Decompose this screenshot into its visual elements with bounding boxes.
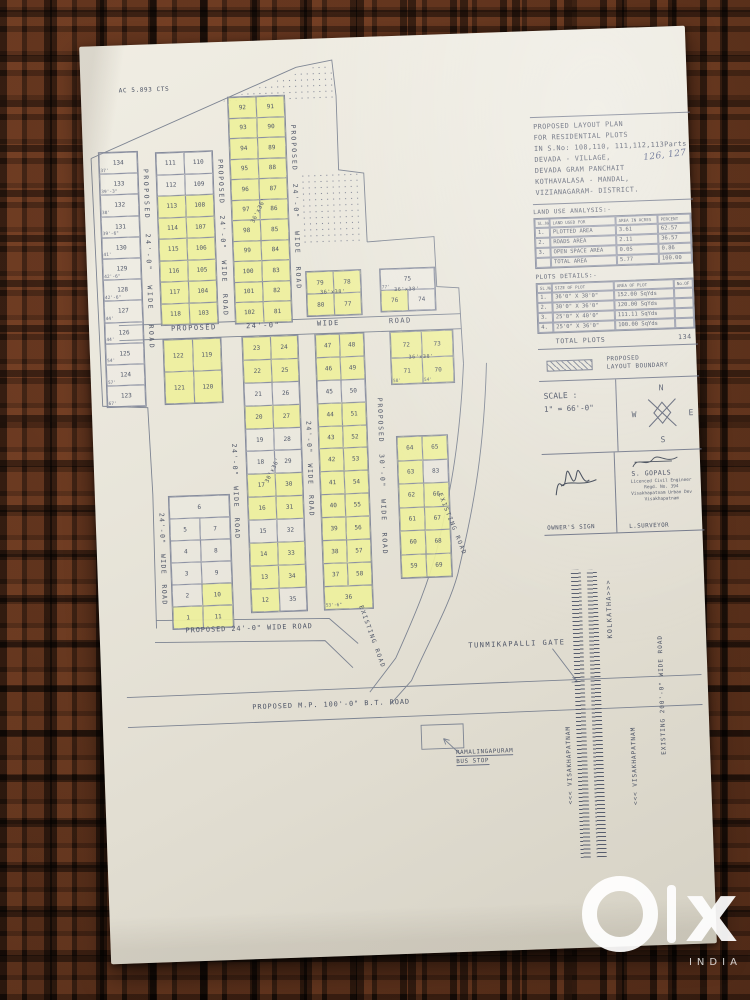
plot-92: 92: [228, 97, 257, 118]
owner-sign-label: OWNER'S SIGN: [547, 524, 595, 532]
surveyor-label: L.SURVEYOR: [629, 523, 669, 530]
plot-63: 63: [398, 460, 424, 484]
land-use-cell: 1.: [535, 228, 550, 239]
plot-details-cell: 3.: [538, 312, 553, 323]
plot-46: 46: [316, 357, 341, 381]
plot-62: 62: [399, 483, 425, 507]
main-road-word-3: WIDE: [317, 319, 340, 328]
plot-26: 26: [271, 381, 299, 405]
scale-compass-row: SCALE : 1" = 66'-0" N S W E: [539, 376, 701, 455]
plot-99: 99: [233, 240, 262, 261]
land-use-total-pct: 100.00: [659, 253, 692, 264]
plot-2: 2: [172, 584, 203, 607]
boundary-legend-icon: [546, 359, 592, 372]
compass-e: E: [688, 408, 694, 417]
plot-details-cell: 1.: [537, 293, 552, 304]
plot-44: 44: [318, 403, 343, 427]
plot-59: 59: [401, 554, 427, 578]
plot-57: 57: [347, 539, 372, 563]
compass-w: W: [631, 410, 637, 419]
plot-51: 51: [342, 402, 367, 426]
surveyor-cell: S. GOPALS Licenced Civil Engineer Regd. …: [615, 449, 705, 532]
olx-logo-x: x: [685, 885, 738, 943]
plot-details-cell: 25'0" X 36'0": [553, 320, 615, 332]
plot-126: 12644': [105, 321, 144, 344]
plot-49: 49: [340, 356, 365, 380]
plot-83: 83: [423, 459, 449, 483]
plot-5: 5: [170, 518, 201, 541]
plot-69: 69: [426, 553, 452, 577]
plot-block-1-11: 6574839210111: [168, 494, 235, 630]
land-use-total-blank: [536, 258, 551, 269]
plot-113: 113: [157, 195, 186, 217]
plot-124: 12457': [106, 364, 145, 387]
plot-block-47-36: 4748464945504451435242534154405539563857…: [314, 332, 374, 610]
surveyor-name: S. GOPALS: [631, 468, 671, 477]
plot-details-cell: 4.: [538, 322, 553, 333]
plot-90: 90: [257, 116, 286, 137]
plot-85: 85: [260, 219, 289, 240]
plot-24: 24: [270, 335, 298, 359]
plot-123: 12367': [107, 385, 146, 408]
plot-27: 27: [272, 404, 300, 428]
olx-india-label: INDIA: [689, 957, 742, 968]
land-use-total-label: TOTAL AREA: [551, 255, 617, 267]
plot-23: 23: [242, 336, 270, 360]
plot-81: 81: [263, 301, 292, 322]
plot-14: 14: [250, 542, 278, 566]
legend-label-line2: LAYOUT BOUNDARY: [607, 361, 669, 371]
plot-120: 120: [193, 370, 223, 403]
plot-133: 13339'-3": [100, 173, 139, 196]
plot-45: 45: [317, 380, 342, 404]
plot-106: 106: [187, 237, 216, 259]
scale-label: SCALE :: [543, 389, 615, 401]
plot-118: 118: [161, 303, 190, 325]
plot-35: 35: [279, 587, 307, 611]
plot-details-cell: [674, 298, 693, 309]
plot-70: 7054': [422, 356, 454, 383]
plot-6: 6: [169, 495, 230, 519]
plot-31: 31: [275, 496, 303, 520]
compass-s: S: [660, 435, 666, 444]
measure-36x38-a: 36'x38': [320, 289, 345, 296]
plot-22: 22: [243, 359, 271, 383]
plot-102: 102: [235, 302, 264, 323]
plot-12: 12: [251, 588, 279, 612]
plot-9: 9: [201, 561, 232, 584]
land-use-cell: 2.: [535, 238, 550, 249]
plot-38: 38: [323, 540, 348, 564]
plot-8: 8: [200, 539, 231, 562]
plot-83: 83: [262, 260, 291, 281]
plot-42: 42: [319, 448, 344, 472]
plot-71: 7158': [391, 357, 423, 384]
layout-plan-paper: 13437'13339'-3"13238'13139'-6"13041'1294…: [79, 26, 717, 965]
plot-68: 68: [425, 529, 451, 553]
plot-61: 61: [399, 507, 425, 531]
plot-20: 20: [245, 405, 273, 429]
plot-104: 104: [188, 280, 217, 302]
plot-48: 48: [339, 333, 364, 357]
plot-33: 33: [277, 541, 305, 565]
plot-details-table: SL.No SIZE OF PLOT AREA OF PLOT No.OF 1.…: [536, 278, 696, 334]
plot-129: 12942'-6": [103, 258, 142, 281]
scale-value: 1" = 66'-0": [544, 402, 616, 414]
photo-of-layout-plan: 13437'13339'-3"13238'13139'-6"13041'1294…: [0, 0, 750, 1000]
plot-block-122-120: 122119121120: [162, 337, 223, 405]
measure-36x38-c: 36'x38': [408, 354, 433, 361]
plot-103: 103: [189, 302, 218, 324]
main-road-word-4: ROAD: [389, 316, 412, 325]
plot-95: 95: [230, 158, 259, 179]
compass-icon: [641, 391, 684, 434]
plot-25: 25: [271, 358, 299, 382]
scale-cell: SCALE : 1" = 66'-0": [539, 379, 618, 454]
plot-114: 114: [158, 217, 187, 239]
plot-112: 112: [157, 174, 186, 196]
plot-131: 13139'-6": [101, 215, 140, 238]
owner-sign-cell: OWNER'S SIGN: [542, 452, 618, 534]
plot-3: 3: [171, 562, 202, 585]
plot-65: 65: [422, 435, 448, 459]
plot-110: 110: [184, 151, 213, 173]
land-use-cell: 3.: [535, 248, 550, 259]
plot-109: 109: [185, 173, 214, 195]
plot-block-111-103: 1111101121091131081141071151061161051171…: [155, 150, 219, 326]
plot-93: 93: [229, 117, 258, 138]
plot-84: 84: [261, 239, 290, 260]
plot-56: 56: [346, 516, 371, 540]
plot-details-cell: [675, 318, 694, 329]
plot-80: 80: [307, 293, 335, 316]
plot-32: 32: [276, 518, 304, 542]
olx-logo-o: [582, 876, 658, 952]
plot-7: 7: [200, 517, 231, 540]
plot-122: 122: [163, 339, 193, 372]
plot-94: 94: [229, 138, 258, 159]
plot-47: 47: [315, 334, 340, 358]
plot-30: 30: [275, 473, 303, 497]
plot-28: 28: [273, 427, 301, 451]
plot-105: 105: [188, 259, 217, 281]
plot-82: 82: [262, 280, 291, 301]
plot-119: 119: [192, 338, 222, 371]
plot-34: 34: [278, 564, 306, 588]
plot-88: 88: [258, 157, 287, 178]
main-road-word-2: 24'-0": [246, 321, 281, 330]
plot-127: 12744': [104, 300, 143, 323]
plot-58: 58: [347, 562, 372, 586]
plot-128: 12842'-6": [103, 279, 142, 302]
plot-54: 54: [344, 470, 369, 494]
olx-logo-bar: [667, 885, 676, 943]
owner-signature: [548, 459, 611, 503]
plot-52: 52: [343, 425, 368, 449]
plot-21: 21: [244, 382, 272, 406]
plot-43: 43: [319, 425, 344, 449]
plot-77: 77: [334, 292, 362, 315]
plot-125: 12554': [106, 342, 145, 365]
compass-cell: N S W E: [616, 376, 701, 451]
plot-36: 3653'-6": [324, 585, 373, 610]
plot-116: 116: [160, 260, 189, 282]
plot-13: 13: [250, 565, 278, 589]
bus-stop-label-line2: BUS STOP: [456, 758, 489, 766]
total-plots-value: 134: [678, 333, 692, 341]
plot-115: 115: [159, 238, 188, 260]
plot-37: 37: [323, 563, 348, 587]
plot-100: 100: [234, 261, 263, 282]
plot-39: 39: [322, 517, 347, 541]
plot-91: 91: [256, 96, 285, 117]
plot-10: 10: [202, 583, 233, 606]
plot-107: 107: [186, 216, 215, 238]
plot-55: 55: [345, 493, 370, 517]
signature-row: OWNER'S SIGN S. GOPALS Licenced Civil En…: [542, 449, 705, 536]
plot-132: 13238': [100, 194, 139, 217]
plot-108: 108: [185, 194, 214, 216]
plot-134: 13437': [99, 152, 138, 175]
plot-details-cell: 2.: [537, 302, 552, 313]
plot-89: 89: [257, 137, 286, 158]
plot-details-cell: [674, 288, 693, 299]
plot-87: 87: [259, 178, 288, 199]
plot-111: 111: [156, 152, 185, 174]
plot-60: 60: [400, 530, 426, 554]
measure-36x38-b: 36'x38': [394, 286, 419, 293]
plot-40: 40: [321, 494, 346, 518]
plot-64: 64: [397, 436, 423, 460]
plot-101: 101: [234, 281, 263, 302]
plot-53: 53: [343, 447, 368, 471]
plot-96: 96: [231, 179, 260, 200]
olx-watermark: x INDIA: [582, 876, 738, 952]
info-panel: PROPOSED LAYOUT PLAN FOR RESIDENTIAL PLO…: [530, 112, 706, 571]
plot-16: 16: [248, 497, 276, 521]
land-use-table: SL.No LAND USED FOR AREA IN ACRES PERCEN…: [533, 213, 693, 269]
compass-n: N: [659, 383, 665, 392]
plot-15: 15: [249, 519, 277, 543]
plot-details-cell: 100.00 SqYds: [615, 318, 675, 330]
land-use-total-area: 5.77: [617, 254, 659, 265]
plot-130: 13041': [102, 237, 141, 260]
plot-41: 41: [320, 471, 345, 495]
title-block: PROPOSED LAYOUT PLAN FOR RESIDENTIAL PLO…: [530, 112, 693, 206]
main-road-word-1: PROPOSED: [171, 323, 217, 333]
plot-121: 121: [165, 371, 195, 404]
plot-details-cell: [675, 308, 694, 319]
plot-98: 98: [232, 220, 261, 241]
total-plots-label: TOTAL PLOTS: [556, 336, 606, 346]
open-space-stipple-right: [300, 171, 364, 245]
plot-4: 4: [170, 540, 201, 563]
plot-50: 50: [341, 379, 366, 403]
plot-117: 117: [160, 281, 189, 303]
plot-19: 19: [246, 428, 274, 452]
